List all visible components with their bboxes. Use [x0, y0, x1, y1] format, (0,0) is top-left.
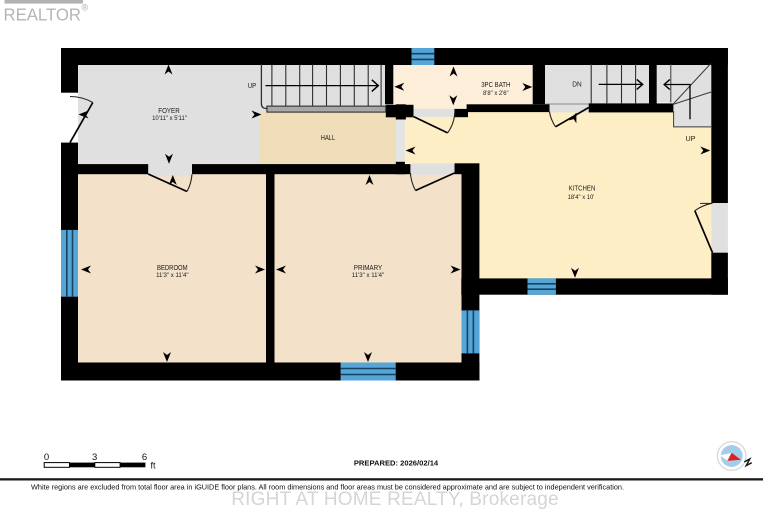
svg-text:DN: DN [572, 82, 581, 89]
svg-text:HALL: HALL [321, 135, 335, 142]
svg-text:ft: ft [151, 461, 157, 471]
svg-text:11'3" x 11'4": 11'3" x 11'4" [156, 272, 189, 279]
svg-text:3: 3 [92, 452, 97, 463]
svg-text:0: 0 [44, 452, 49, 463]
svg-text:11'3" x 11'4": 11'3" x 11'4" [352, 272, 385, 279]
svg-text:10'11" x 5'11": 10'11" x 5'11" [152, 115, 187, 122]
svg-text:RIGHT AT HOME REALTY, Brokerag: RIGHT AT HOME REALTY, Brokerage [231, 489, 559, 510]
svg-text:UP: UP [686, 134, 696, 143]
svg-text:KITCHEN: KITCHEN [569, 186, 596, 193]
svg-text:REALTOR: REALTOR [4, 5, 82, 25]
svg-text:UP: UP [248, 83, 257, 90]
svg-text:®: ® [82, 3, 89, 13]
svg-text:White regions are excluded fro: White regions are excluded from total fl… [31, 482, 624, 491]
svg-text:PREPARED: 2026/02/14: PREPARED: 2026/02/14 [354, 458, 439, 467]
svg-text:18'4" x 10': 18'4" x 10' [568, 194, 595, 201]
svg-text:3PC BATH: 3PC BATH [481, 82, 510, 89]
svg-text:6: 6 [142, 452, 147, 463]
svg-text:8'8" x 2'6": 8'8" x 2'6" [483, 90, 509, 97]
